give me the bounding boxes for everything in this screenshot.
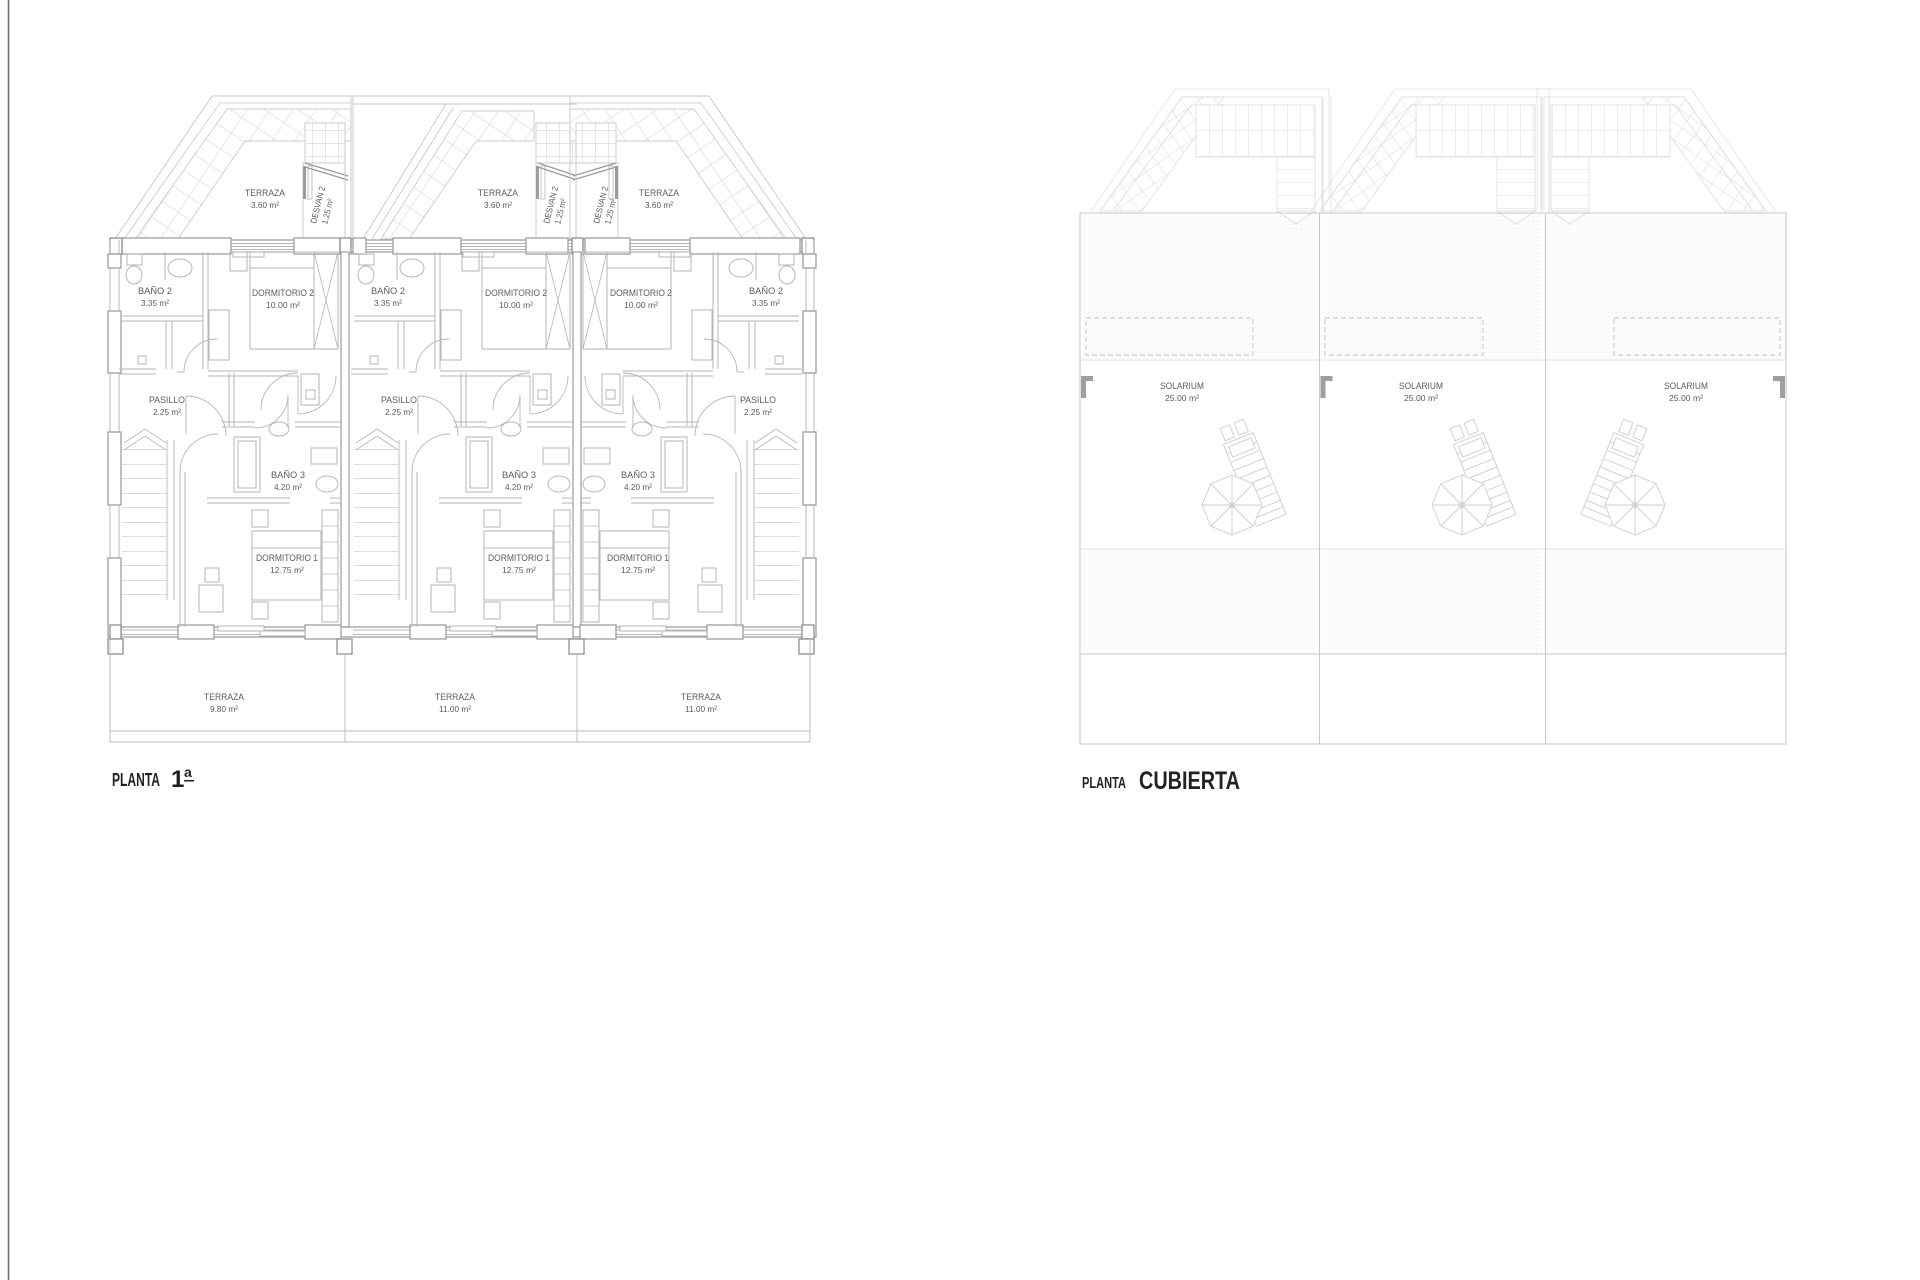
svg-text:11.00 m²: 11.00 m² xyxy=(439,704,471,714)
svg-text:10.00 m²: 10.00 m² xyxy=(266,300,300,310)
svg-text:TERRAZA: TERRAZA xyxy=(681,692,721,702)
svg-text:TERRAZA: TERRAZA xyxy=(639,188,679,198)
svg-text:SOLARIUM: SOLARIUM xyxy=(1399,381,1443,391)
svg-text:25.00 m²: 25.00 m² xyxy=(1165,393,1199,403)
svg-text:1: 1 xyxy=(171,766,184,793)
svg-text:CUBIERTA: CUBIERTA xyxy=(1139,767,1240,795)
svg-text:PASILLO: PASILLO xyxy=(740,395,776,405)
svg-text:TERRAZA: TERRAZA xyxy=(435,692,475,702)
svg-text:BAÑO 2: BAÑO 2 xyxy=(138,286,172,296)
svg-text:2.25 m²: 2.25 m² xyxy=(153,407,181,417)
svg-text:PASILLO: PASILLO xyxy=(381,395,417,405)
svg-text:BAÑO 2: BAÑO 2 xyxy=(749,286,783,296)
svg-text:12.75 m²: 12.75 m² xyxy=(621,565,655,575)
svg-text:12.75 m²: 12.75 m² xyxy=(270,565,304,575)
svg-text:DORMITORIO 1: DORMITORIO 1 xyxy=(488,553,550,563)
svg-text:DORMITORIO 2: DORMITORIO 2 xyxy=(252,288,314,298)
svg-text:3.35 m²: 3.35 m² xyxy=(374,298,402,308)
svg-text:TERRAZA: TERRAZA xyxy=(478,188,518,198)
svg-text:TERRAZA: TERRAZA xyxy=(204,692,244,702)
svg-text:DORMITORIO 1: DORMITORIO 1 xyxy=(256,553,318,563)
svg-text:BAÑO 3: BAÑO 3 xyxy=(621,470,655,480)
svg-text:9.80 m²: 9.80 m² xyxy=(210,704,238,714)
svg-text:4.20 m²: 4.20 m² xyxy=(505,482,533,492)
svg-text:2.25 m²: 2.25 m² xyxy=(744,407,772,417)
svg-text:3.60 m²: 3.60 m² xyxy=(645,200,673,210)
svg-text:BAÑO 2: BAÑO 2 xyxy=(371,286,405,296)
svg-text:DORMITORIO 2: DORMITORIO 2 xyxy=(485,288,547,298)
svg-text:3.35 m²: 3.35 m² xyxy=(141,298,169,308)
svg-text:12.75 m²: 12.75 m² xyxy=(502,565,536,575)
svg-text:10.00 m²: 10.00 m² xyxy=(624,300,658,310)
svg-text:3.35 m²: 3.35 m² xyxy=(752,298,780,308)
svg-text:10.00 m²: 10.00 m² xyxy=(499,300,533,310)
svg-text:a: a xyxy=(184,764,192,780)
svg-text:PASILLO: PASILLO xyxy=(149,395,185,405)
svg-text:BAÑO 3: BAÑO 3 xyxy=(271,470,305,480)
svg-text:25.00 m²: 25.00 m² xyxy=(1669,393,1703,403)
svg-text:PLANTA: PLANTA xyxy=(112,770,160,790)
svg-text:3.60 m²: 3.60 m² xyxy=(484,200,512,210)
svg-text:SOLARIUM: SOLARIUM xyxy=(1664,381,1708,391)
svg-text:BAÑO 3: BAÑO 3 xyxy=(502,470,536,480)
svg-text:11.00 m²: 11.00 m² xyxy=(685,704,717,714)
svg-text:4.20 m²: 4.20 m² xyxy=(624,482,652,492)
svg-text:PLANTA: PLANTA xyxy=(1082,775,1126,792)
svg-text:4.20 m²: 4.20 m² xyxy=(274,482,302,492)
svg-text:DORMITORIO 2: DORMITORIO 2 xyxy=(610,288,672,298)
svg-text:25.00 m²: 25.00 m² xyxy=(1404,393,1438,403)
svg-text:TERRAZA: TERRAZA xyxy=(245,188,285,198)
svg-text:2.25 m²: 2.25 m² xyxy=(385,407,413,417)
svg-text:SOLARIUM: SOLARIUM xyxy=(1160,381,1204,391)
svg-text:3.60 m²: 3.60 m² xyxy=(251,200,279,210)
svg-text:DORMITORIO 1: DORMITORIO 1 xyxy=(607,553,669,563)
